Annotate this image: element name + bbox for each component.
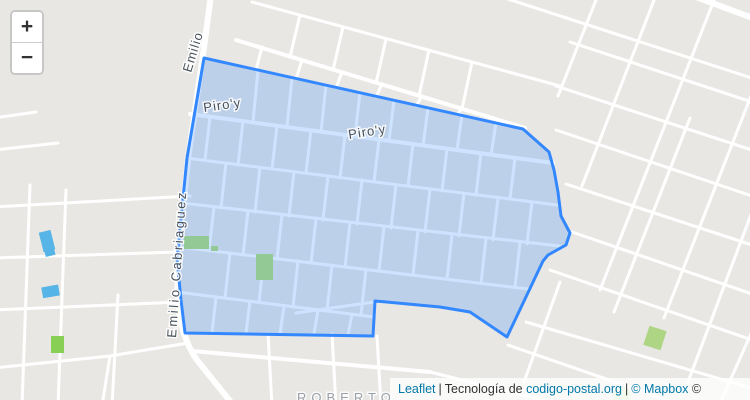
leaflet-link[interactable]: Leaflet [398, 382, 436, 396]
mapbox-link[interactable]: © Mapbox [631, 382, 688, 396]
codigo-postal-link[interactable]: codigo-postal.org [526, 382, 622, 396]
attribution-bar: Leaflet|Tecnología de codigo-postal.org|… [390, 378, 750, 400]
attribution-separator: | [622, 382, 631, 396]
park-patch [51, 336, 64, 353]
zoom-control: + − [10, 10, 44, 75]
neighborhood-label-roberto: ROBERTO [297, 390, 396, 400]
map-container: Emilio Emilio Cabriaguez Piro'y Piro'y R… [0, 0, 750, 400]
zoom-out-button[interactable]: − [12, 43, 42, 73]
map-canvas[interactable]: Emilio Emilio Cabriaguez Piro'y Piro'y R… [0, 0, 750, 400]
attribution-prefix: Tecnología de [445, 382, 523, 396]
attribution-suffix: © [692, 382, 701, 396]
attribution-separator: | [436, 382, 445, 396]
zoom-in-button[interactable]: + [12, 12, 42, 43]
